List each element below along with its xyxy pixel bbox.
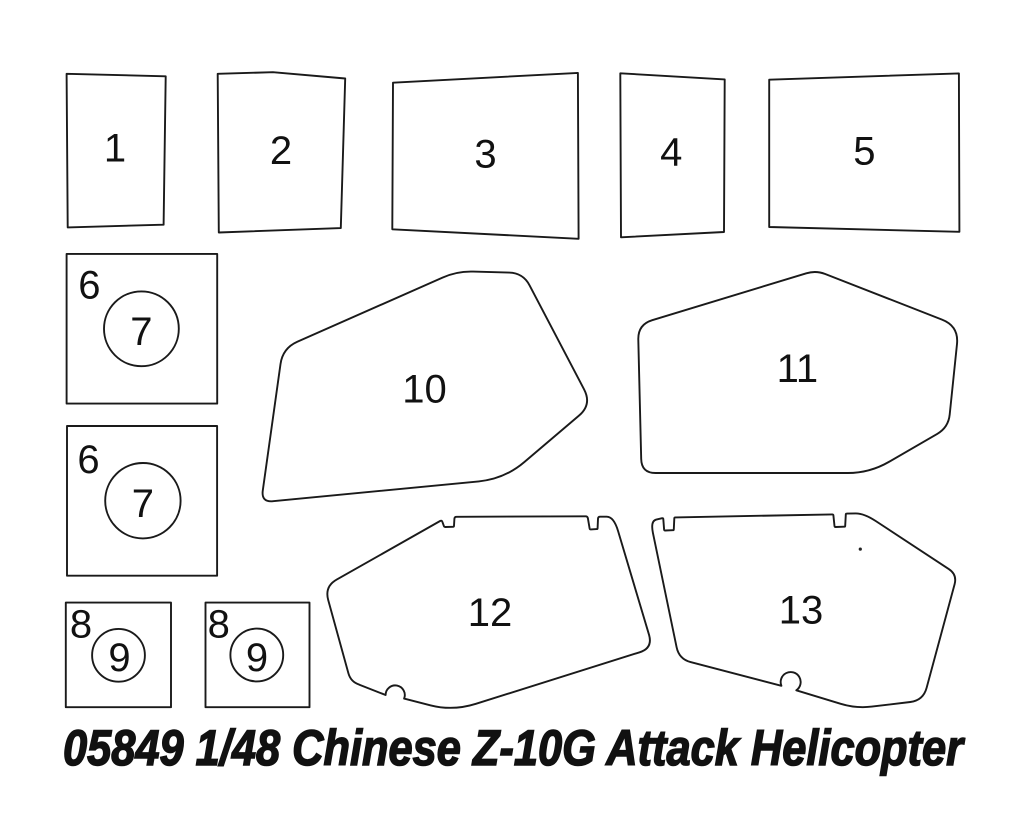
svg-text:1: 1 [104,127,126,171]
svg-text:4: 4 [660,131,682,175]
svg-text:6: 6 [78,263,100,307]
svg-text:05849 1/48 Chinese Z-10G Attac: 05849 1/48 Chinese Z-10G Attack Helicopt… [63,720,965,776]
svg-text:5: 5 [853,129,875,173]
svg-text:7: 7 [132,482,154,526]
svg-text:10: 10 [402,368,447,412]
svg-text:13: 13 [779,589,824,633]
svg-text:7: 7 [130,310,152,354]
svg-text:8: 8 [208,603,230,647]
svg-text:9: 9 [246,636,268,680]
svg-text:12: 12 [468,591,513,635]
svg-text:2: 2 [270,129,292,173]
svg-text:9: 9 [108,636,130,680]
svg-text:3: 3 [474,133,496,177]
svg-text:11: 11 [777,347,819,391]
svg-text:8: 8 [70,603,92,647]
svg-text:6: 6 [77,438,99,482]
